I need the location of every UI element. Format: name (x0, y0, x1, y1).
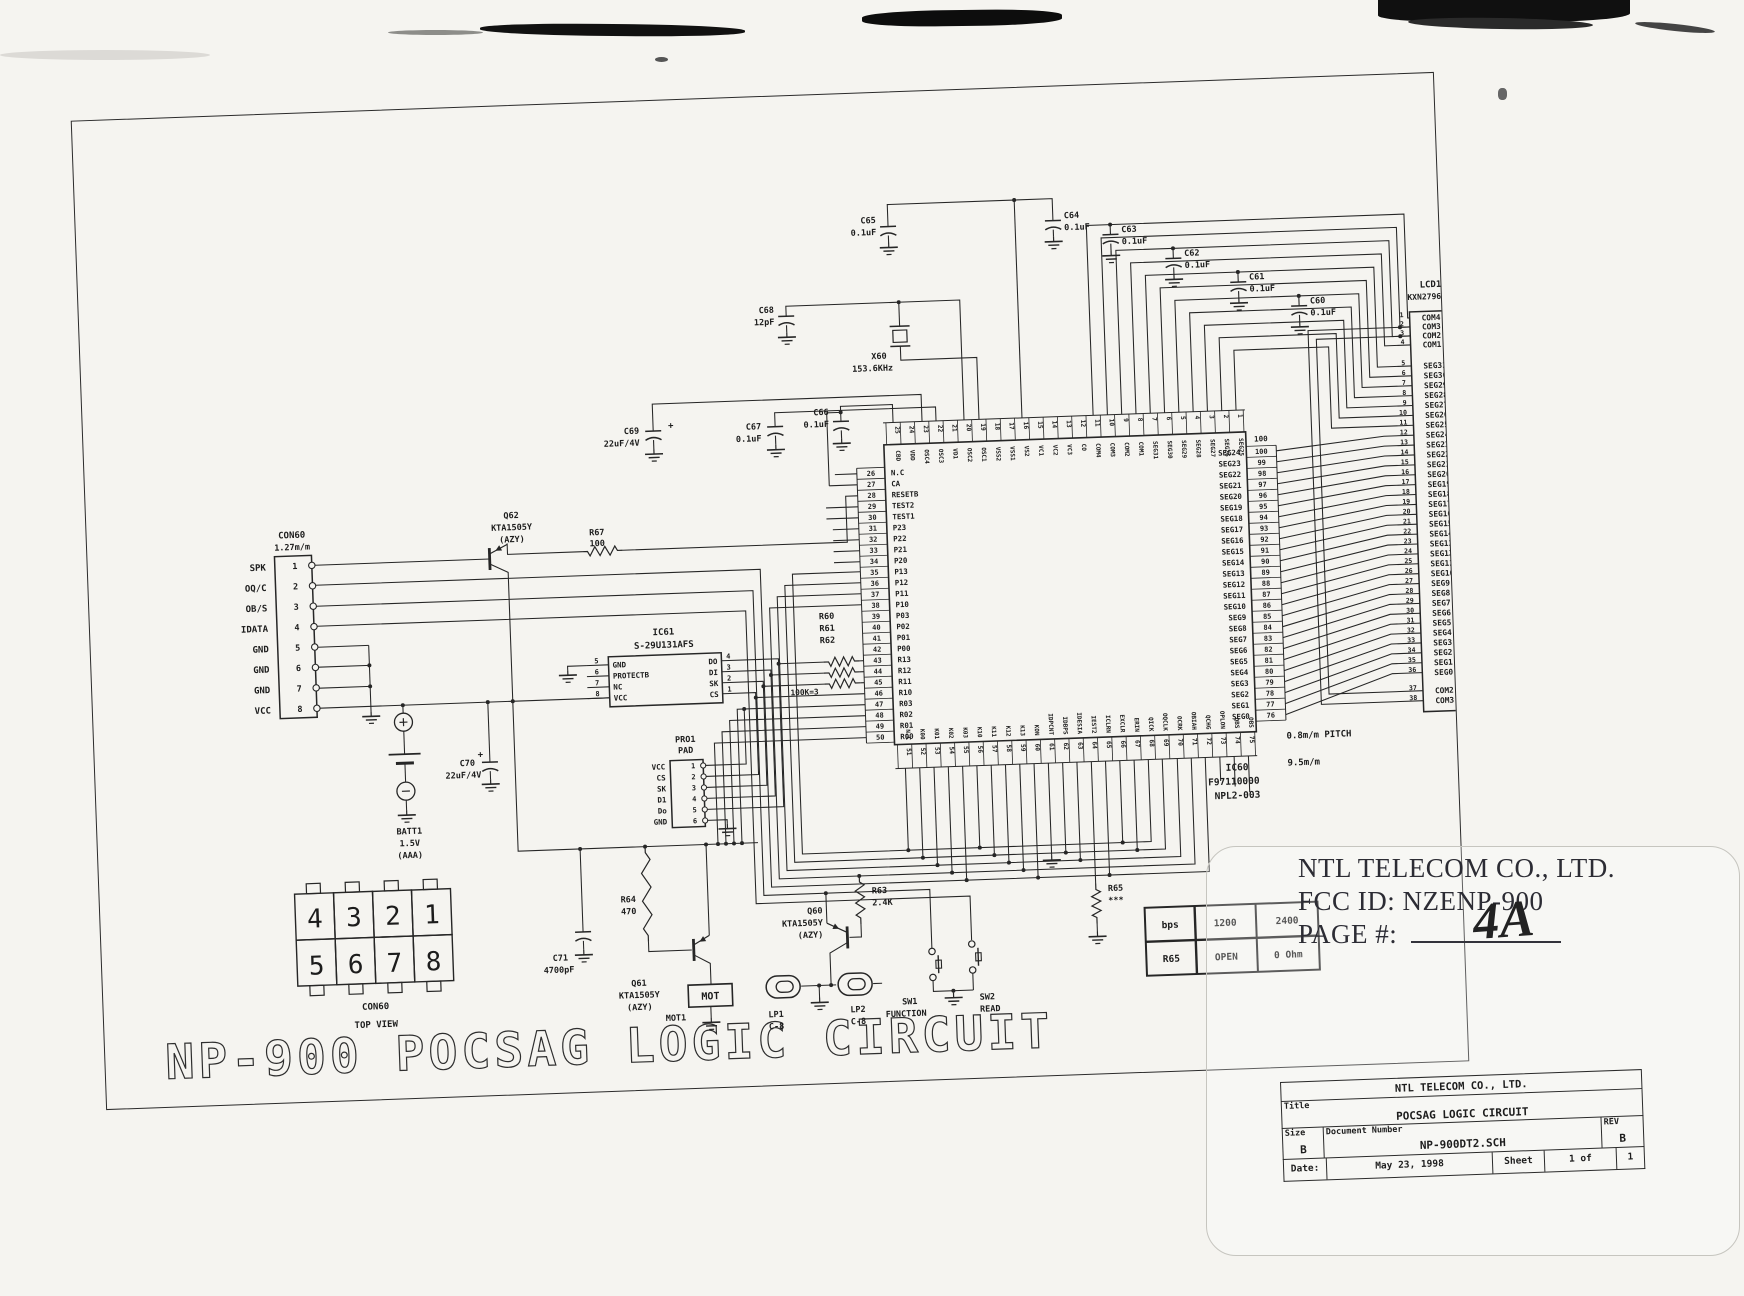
ic60-bottom-pin-number: 52 (919, 748, 926, 756)
lcd1-pin-label: SEG15 (1429, 519, 1453, 529)
wire (722, 727, 870, 844)
lp1-lamp-icon (776, 981, 793, 993)
ic60-top-pin-label: VSS2 (994, 447, 1002, 462)
ic60-right-pin-number: 91 (1261, 547, 1270, 555)
ic60-left-pin-number: 32 (869, 536, 878, 544)
pro1-pin-label: CS (656, 773, 666, 782)
wire (706, 844, 709, 935)
wire (1253, 643, 1283, 644)
dip-tab (423, 879, 437, 889)
lcd1-pin-label: SEG18 (1428, 489, 1452, 499)
sheet-total: 1 (1616, 1147, 1645, 1169)
ic60-bottom-pin-label: K00 (918, 729, 925, 740)
wire (865, 687, 893, 688)
ic60-left-pin-number: 50 (876, 733, 885, 741)
lcd1-pin-label: SEG12 (1430, 549, 1454, 559)
c71-ref: C71 (552, 953, 568, 964)
ic60-right-pin-number: 100 (1255, 448, 1268, 456)
ic60-bottom-pin-number: 69 (1162, 739, 1169, 747)
ic60-right-pin-number: 88 (1262, 580, 1271, 588)
ic60-top-pin-number: 9 (1122, 418, 1129, 422)
wire (883, 410, 1245, 423)
junction-dot (1012, 198, 1016, 202)
c65-ref: C65 (860, 216, 876, 227)
wire (859, 522, 887, 523)
bus-seg-fan (1281, 564, 1420, 594)
con60-pin-label: GND (252, 645, 269, 656)
con60-pin-number: 2 (293, 582, 298, 592)
ic60-bottom-pin-number: 70 (1176, 738, 1183, 746)
ic60-bottom-pin-label: K03 (961, 727, 968, 738)
ic60-left-pin-label: P22 (893, 534, 907, 543)
wire (1250, 544, 1280, 545)
lcd1-pin-label: SEG5 (1432, 618, 1451, 628)
ic60-bottom-pin-number: 51 (905, 748, 912, 756)
ic60-top-pin-label: SEG30 (1166, 441, 1174, 460)
lcd1-pin-label: SEG23 (1426, 440, 1450, 450)
ic60-right-pin-number: 94 (1259, 514, 1268, 522)
c70-val: 22uF/4V (445, 770, 481, 781)
wire (1249, 522, 1279, 523)
ic61-pin-label: DI (709, 668, 718, 677)
ic60-right-pin-label: SEG5 (1230, 657, 1248, 667)
pro1-pin-circle (701, 763, 706, 768)
bus-seg-fan (1281, 574, 1420, 605)
wire (1195, 906, 1197, 974)
pro1-pin-circle (701, 785, 706, 790)
bus-top-nest (1190, 305, 1413, 412)
lp1-lamp-icon (766, 975, 801, 998)
ic60-left-pin-label: P12 (895, 578, 909, 587)
ic60-bottom-pin-number: 74 (1233, 736, 1240, 744)
c69-val: 22uF/4V (604, 439, 640, 450)
bps-table-cell: R65 (1163, 954, 1181, 966)
pro1-pin-number: 1 (691, 762, 696, 770)
c65-capacitor-icon (880, 233, 896, 236)
pro1-body (670, 760, 705, 828)
ic60-pin100-label: 100 (1254, 434, 1268, 443)
x60-val: 153.6KHz (852, 363, 893, 374)
ic60-bottom-pin-label: K10 (975, 727, 982, 738)
ic61-pin-label: VCC (614, 693, 628, 702)
junction-dot (921, 856, 925, 860)
ic60-bottom-pin-number: 55 (962, 746, 969, 754)
ic60-bottom-pin-number: 71 (1191, 738, 1198, 746)
q60-transistor-icon (847, 926, 848, 948)
dip-tab (310, 985, 324, 995)
pro1-ref: PRO1 (675, 735, 696, 746)
lcd1-pin-label: SEG19 (1427, 479, 1451, 489)
ic60-bottom-pin-number: 62 (1062, 742, 1069, 750)
c71-val: 4700pF (544, 965, 575, 976)
r67-val: 100 (589, 539, 605, 550)
ic60-right-pin-label: SEG23 (1218, 459, 1241, 469)
ic60-left-pin-label: P01 (897, 633, 911, 642)
lcd1-pin-label: SEG13 (1430, 539, 1454, 549)
ic60-left-pin-number: 26 (867, 470, 876, 478)
stamp-page-handwritten: 4A (1472, 902, 1536, 939)
wire (1252, 621, 1282, 622)
dip-tab (349, 984, 363, 994)
scan-artifact (862, 9, 1062, 28)
junction-dot (1007, 861, 1011, 865)
wire (1045, 241, 1063, 242)
pro1-pin-label: GND (653, 817, 667, 826)
ic60-top-pin-label: OSC4 (923, 449, 931, 464)
junction-dot (1135, 848, 1139, 852)
ic60-top-pin-label: COM1 (1137, 442, 1145, 457)
q60-part: KTA1505Y (782, 918, 824, 929)
wire (621, 496, 859, 550)
x60-ref: X60 (871, 352, 887, 363)
lcd1-pin-label: COM2 (1435, 686, 1454, 696)
dip-ref: CON60 (362, 1002, 389, 1013)
wire (857, 478, 885, 479)
ic60-top-pin-label: CBD (894, 450, 901, 461)
wire (1102, 255, 1120, 256)
wire (767, 449, 785, 450)
wire (482, 784, 500, 785)
bus-seg-fan (1284, 653, 1423, 693)
ic60-bottom-pin-label: K11 (990, 726, 997, 737)
wire (1250, 566, 1280, 567)
wire (866, 731, 894, 732)
junction-dot (368, 684, 372, 688)
rbank-resistor-icon (823, 656, 859, 666)
wire (945, 997, 963, 998)
ic60-bottom-pin-number: 73 (1219, 737, 1226, 745)
junction-dot (992, 853, 996, 857)
wire (861, 577, 889, 578)
ic60-right-pin-number: 83 (1264, 635, 1273, 643)
bus-seg-fan (1277, 455, 1415, 473)
sw1-switch-icon (929, 948, 936, 955)
ic60-bottom-pin-label: EXCLR (1118, 714, 1126, 733)
size-label: Size (1285, 1128, 1306, 1139)
wire (1248, 511, 1278, 512)
wire (1256, 709, 1286, 710)
scan-artifact (480, 23, 745, 38)
wire (880, 247, 898, 248)
lcd1-pin-label: SEG4 (1433, 628, 1452, 638)
con60-pin-number: 1 (292, 562, 297, 572)
batt1-ref: BATT1 (396, 827, 422, 838)
bus-seg-fan (1280, 554, 1419, 583)
junction-dot (511, 699, 515, 703)
con60-pin-number: 4 (294, 623, 299, 633)
wire (834, 551, 860, 552)
wire (864, 665, 892, 666)
wire (312, 559, 490, 565)
r65-resistor-icon (1091, 883, 1101, 923)
wire (1247, 467, 1277, 468)
c60-capacitor-icon-val: 0.1uF (1310, 308, 1336, 319)
ic60-bottom-pin-label: K12 (1004, 726, 1011, 737)
dip-number: 6 (347, 950, 364, 981)
ic60-right-pin-label: SEG24 (1218, 448, 1241, 458)
c66-capacitor-icon (833, 428, 849, 431)
wire (977, 766, 980, 848)
c67-ref: C67 (746, 422, 762, 433)
ic60-top-pin-number: 7 (1150, 417, 1157, 421)
wire (369, 645, 371, 711)
lcd1-pin-label: SEG9 (1431, 578, 1450, 588)
sw1-ref: SW1 (902, 997, 918, 1008)
con60-pin-label: OB/S (245, 604, 267, 615)
ic60-top-pin-label: VD1 (951, 448, 958, 459)
junction-dot (1036, 876, 1040, 880)
ic60-left-pin-label: N.C (891, 468, 905, 477)
ic60-left-pin-label: R01 (900, 721, 914, 730)
ic60-bottom-pin-number: 57 (990, 745, 997, 753)
wire (900, 343, 979, 422)
dip-number: 3 (346, 903, 363, 934)
wire (1048, 763, 1051, 855)
wire (694, 954, 711, 985)
dip-tab (345, 882, 359, 892)
wire (1063, 763, 1066, 853)
wire (867, 742, 895, 743)
ic60-right-pin-label: SEG13 (1222, 569, 1245, 579)
c66-val: 0.1uF (803, 420, 829, 431)
ic60-right-pin-label: SEG3 (1231, 679, 1249, 689)
ic60-left-pin-label: P00 (897, 644, 911, 653)
ic60-left-pin-number: 47 (875, 701, 884, 709)
wire (905, 768, 908, 850)
wire (1043, 860, 1061, 861)
ic61-pin-number: 4 (726, 652, 731, 660)
wire (861, 588, 889, 589)
junction-dot (1021, 868, 1025, 872)
wire (404, 731, 405, 754)
con60-pin-circle (312, 664, 319, 671)
wire (897, 745, 898, 769)
c64-capacitor-icon (1045, 227, 1061, 230)
doc-label: Document Number (1326, 1125, 1403, 1138)
ic60-bottom-pin-number: 59 (1019, 744, 1026, 752)
c62-capacitor-icon-val: 0.1uF (1184, 260, 1210, 271)
r63-ref: R63 (872, 886, 888, 897)
ic60-right-pin-number: 81 (1264, 657, 1273, 665)
lcd1-pin-label: SEG21 (1427, 460, 1451, 470)
c62-capacitor-icon (1166, 265, 1182, 268)
scan-artifact (388, 30, 483, 35)
ic60-left-pin-label: P02 (896, 622, 910, 631)
con60-pin-circle (308, 562, 315, 569)
junction-dot (732, 841, 736, 845)
ic60-top-pin-label: VSS1 (1008, 446, 1016, 461)
wire (1291, 327, 1309, 328)
wire (580, 849, 583, 932)
ic60-bottom-pin-number: 64 (1090, 741, 1097, 749)
junction-dot (724, 842, 728, 846)
wire (833, 443, 851, 444)
ic60-top-pin-label: COM3 (1108, 443, 1116, 458)
wire (826, 507, 858, 508)
ic60-left-pin-number: 44 (874, 668, 883, 676)
ic60-bottom-pin-label: K02 (947, 728, 954, 739)
c70-ref: C70 (459, 759, 475, 770)
ic61-pin-number: 5 (594, 657, 599, 665)
ic60-top-pin-number: 15 (1036, 421, 1043, 429)
con60-pin-number: 3 (294, 603, 299, 613)
ic61-pin-number: 2 (727, 674, 732, 682)
scan-shading (0, 50, 210, 60)
ic60-left-pin-number: 43 (873, 657, 882, 665)
ic60-top-pin-label: SEG27 (1208, 439, 1216, 458)
bus-seg-fan (1277, 475, 1415, 495)
junction-dot (1078, 858, 1082, 862)
ic60-top-pin-label: VC3 (1066, 444, 1073, 455)
ic60-part: F97110000 (1208, 776, 1260, 789)
dip-tab (427, 981, 441, 991)
size-value: B (1283, 1142, 1323, 1156)
lcd1-pin-label: SEG26 (1425, 410, 1449, 420)
battery-plate (389, 754, 421, 755)
junction-dot (935, 863, 939, 867)
fcc-stamp: NTL TELECOM CO., LTD. FCC ID: NZENP-900 … (1298, 852, 1718, 951)
ic60-right-pin-number: 99 (1257, 459, 1266, 467)
c68-capacitor-icon (778, 322, 794, 325)
wire (860, 566, 888, 567)
ic60-right-pin-label: SEG4 (1230, 668, 1249, 678)
ic60-left-pin-label: P20 (894, 556, 908, 565)
ic60-bottom-pin-number: 54 (948, 746, 955, 754)
junction-dot (906, 848, 910, 852)
ic60-left-pin-label: P03 (896, 611, 910, 620)
lcd1-pin-label: SEG0 (1434, 668, 1453, 678)
wire (648, 940, 691, 952)
batt1-type: (AAA) (397, 851, 423, 862)
ic60-bottom-pin-label: ERIN (1133, 717, 1141, 732)
bus-seg-fan (1283, 633, 1422, 671)
c69-capacitor-icon (645, 437, 661, 440)
wire (963, 766, 967, 880)
title-label: Title (1284, 1101, 1310, 1112)
sw2-val: READ (980, 1004, 1001, 1015)
c71-capacitor-icon (575, 932, 591, 933)
wire (575, 955, 593, 956)
ic60-left-pin-label: P21 (893, 545, 907, 554)
ic60-bottom-pin-number: 66 (1119, 740, 1126, 748)
lcd1-pin-label: SEG10 (1431, 568, 1455, 578)
ic60-top-pin-number: 19 (979, 423, 986, 431)
mot-box-label: MOT (701, 991, 719, 1003)
wire (1254, 654, 1284, 655)
ic60-right-pin-number: 97 (1258, 481, 1267, 489)
ic60-top-pin-number: 3 (1208, 415, 1215, 419)
r61-ref: R61 (819, 624, 835, 635)
ic61-ref: IC61 (652, 627, 674, 638)
bus-top-nest (1234, 344, 1414, 432)
rbank-resistor-icon (824, 667, 860, 677)
wire (895, 756, 1257, 769)
wire (1255, 698, 1285, 699)
date-label: Date: (1284, 1158, 1327, 1180)
ic60-left-pin-number: 49 (876, 723, 885, 731)
con60-pin-number: 5 (295, 644, 300, 654)
ic60-left-pin-label: P10 (895, 600, 909, 609)
ic60-right-pin-label: SEG1 (1231, 701, 1250, 711)
wire (886, 423, 887, 445)
lcd1-pin-label: SEG14 (1429, 529, 1453, 539)
con60-pitch: 1.27m/m (274, 542, 310, 553)
junction-dot (1121, 840, 1125, 844)
wire (778, 337, 796, 338)
wire (1077, 762, 1081, 860)
wire (318, 645, 369, 647)
ic60-right-pin-label: SEG6 (1229, 646, 1248, 656)
ic60-bottom-pin-label: IDBPS (1061, 716, 1069, 735)
dip-number: 2 (385, 901, 402, 932)
ic60-top-pin-label: COM2 (1123, 442, 1131, 457)
dip-number: 1 (424, 900, 441, 931)
bus-seg-fan (1283, 623, 1422, 660)
c64-capacitor-icon (1045, 220, 1061, 221)
q60-ref: Q60 (807, 906, 823, 917)
pro1-pin-circle (702, 818, 707, 823)
con60-pin-label: VCC (255, 706, 272, 717)
c65-val: 0.1uF (851, 228, 877, 239)
ic61-pin-number: 1 (727, 685, 732, 693)
ic60-left-pin-number: 39 (872, 613, 881, 621)
junction-dot (1171, 246, 1175, 250)
c60-capacitor-icon (1291, 312, 1307, 315)
rev-label: REV (1603, 1117, 1619, 1128)
ic60-left-pin-number: 29 (868, 503, 877, 511)
ic60-bottom-pin-number: 56 (976, 745, 983, 753)
r64-ref: R64 (620, 895, 636, 906)
scanned-schematic-page: { "big_title": "NP-900 POCSAG LOGIC CIRC… (0, 0, 1744, 1296)
ic60-right-pin-number: 89 (1261, 569, 1270, 577)
ic60-right-pin-number: 79 (1265, 679, 1274, 687)
c68-val: 12pF (754, 318, 775, 329)
ic60-top-pin-label: COM4 (1094, 443, 1102, 458)
lcd1-pin-label: SEG20 (1427, 469, 1451, 479)
sw2-switch-icon (969, 967, 976, 974)
con60-pin-circle (311, 623, 318, 630)
ic61-pin-label: CS (709, 690, 719, 699)
bus-top-nest (1101, 227, 1413, 415)
size-cell: Size B (1283, 1128, 1324, 1159)
junction-dot (1108, 873, 1112, 877)
wire (866, 720, 894, 721)
ic60-top-pin-label: OSC2 (966, 448, 974, 463)
junction-dot (1064, 851, 1068, 855)
ic60-right-pin-number: 90 (1261, 558, 1270, 566)
lp2-lamp-icon (838, 973, 873, 996)
lcd1-pin-label: SEG17 (1428, 499, 1452, 509)
c64-ref: C64 (1064, 211, 1080, 222)
ic60-right-pin-label: SEG11 (1223, 591, 1246, 601)
title-block: NTL TELECOM CO., LTD. Title POCSAG LOGIC… (1280, 1069, 1645, 1182)
batt1-voltage: 1.5V (399, 839, 420, 850)
wire (1256, 720, 1286, 721)
ic60-top-pin-number: 12 (1079, 420, 1086, 428)
con60-ref: CON60 (278, 531, 305, 542)
junction-dot (367, 663, 371, 667)
ic60-bottom-pin-label: QCHG (1204, 715, 1212, 730)
c70-polarity: + (478, 750, 484, 760)
lcd-pitch-note: 0.8m/m PITCH (1286, 729, 1351, 741)
c66-capacitor-icon (833, 421, 849, 422)
junction-dot (740, 841, 744, 845)
ic60-left-pin-number: 34 (870, 558, 879, 566)
lcd1-pin-label: SEG11 (1430, 559, 1454, 569)
wire (559, 675, 577, 676)
pro1-pin-label: Do (658, 806, 668, 815)
r64-resistor-icon (641, 846, 653, 941)
